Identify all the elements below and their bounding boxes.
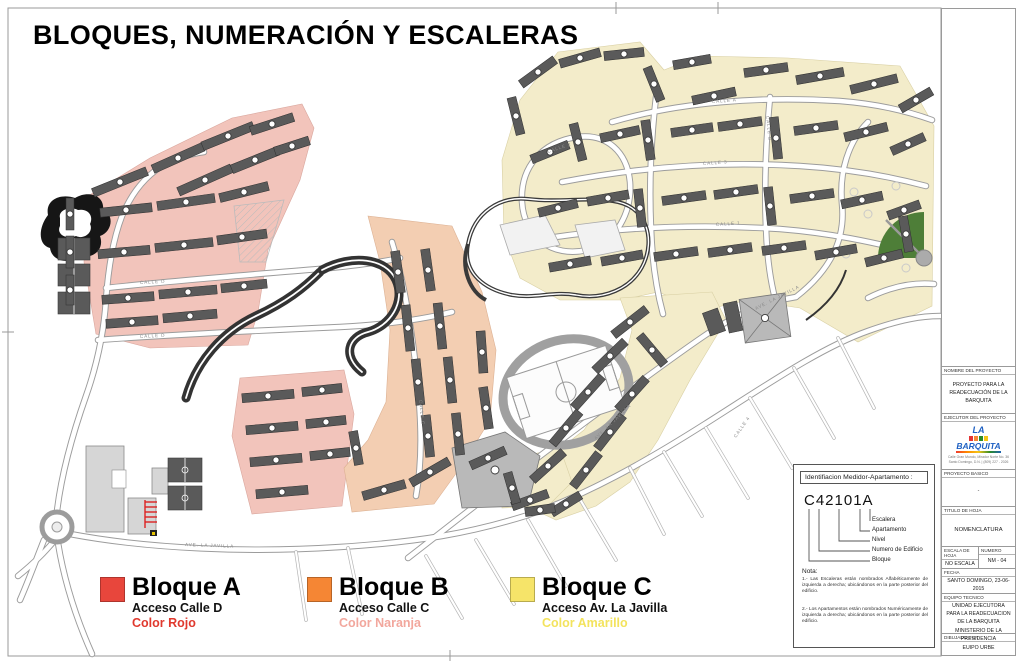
building xyxy=(66,236,74,268)
road xyxy=(630,468,664,534)
building xyxy=(66,275,74,305)
building-number-badge xyxy=(736,120,743,127)
drawn-by: EUIPO URBE xyxy=(942,642,1015,655)
building-number-badge xyxy=(621,51,628,58)
page-title: BLOQUES, NUMERACIÓN Y ESCALERAS xyxy=(33,20,578,51)
building-number-badge xyxy=(269,425,276,432)
legend-swatch-orange xyxy=(307,577,332,602)
section-header: NUMERO xyxy=(979,547,1015,555)
building-number-badge xyxy=(67,211,73,217)
section-header: DIBUJADO POR xyxy=(942,634,1015,642)
section-header: ESCALA DE HOJA xyxy=(942,547,978,560)
legend-acceso: Acceso Calle D xyxy=(132,601,241,615)
street-label: CALLE 4 xyxy=(733,415,751,438)
building-number-badge xyxy=(773,135,780,142)
building-number-badge xyxy=(437,323,444,330)
building-number-badge xyxy=(265,393,272,400)
section-header: EJECUTOR DEL PROYECTO xyxy=(942,414,1015,422)
note-1: 1.- Las Escaleras están nombrados Alfabé… xyxy=(802,577,928,596)
road xyxy=(794,368,834,438)
section-header: FECHA xyxy=(942,569,1015,577)
equipo-line-1: UNIDAD EJECUTORA PARA LA READECUACION DE… xyxy=(945,603,1012,626)
identification-box: Identifiacion Medidor-Apartamento : C421… xyxy=(793,464,935,648)
building-number-badge xyxy=(273,457,280,464)
building-number-badge xyxy=(123,207,130,214)
code-part-apartamento: Apartamento xyxy=(872,527,906,533)
building-number-badge xyxy=(780,244,787,251)
code-part-escalera: Escalera xyxy=(872,517,895,523)
building xyxy=(66,198,74,230)
building-number-badge xyxy=(482,404,489,411)
section-header: PROYECTO BASICO xyxy=(942,470,1015,478)
section-nombre-proyecto: NOMBRE DEL PROYECTO PROYECTO PARA LA REA… xyxy=(942,367,1015,414)
section-dibujado-por: DIBUJADO POR EUIPO URBE xyxy=(942,634,1015,655)
building-number-badge xyxy=(812,124,819,131)
building-number-badge xyxy=(455,431,462,438)
legend-acceso: Acceso Calle C xyxy=(339,601,449,615)
building-number-badge xyxy=(536,506,543,513)
legend-item-bloque-a: Bloque A Acceso Calle D Color Rojo xyxy=(100,574,241,630)
drawing-sheet: CALLE D CALLE C AVE. LA JAVILLA AVE. LA … xyxy=(0,0,1024,663)
title-block: NOMBRE DEL PROYECTO PROYECTO PARA LA REA… xyxy=(941,8,1016,656)
road xyxy=(476,540,514,604)
code-part-nivel: Nivel xyxy=(872,537,885,543)
building-number-badge xyxy=(726,246,733,253)
road xyxy=(706,428,748,498)
building-number-badge xyxy=(319,387,326,394)
roundabout xyxy=(42,512,72,542)
building-number-badge xyxy=(185,289,192,296)
section-titulo-hoja: TITULO DE HOJA NOMENCLATURA xyxy=(942,507,1015,547)
la-barquita-logo: LA BARQUITA Calle Gran Mundo, Mirador No… xyxy=(948,426,1009,464)
building-number-badge xyxy=(425,433,432,440)
building-number-badge xyxy=(767,203,774,210)
building-number-badge xyxy=(67,287,73,293)
legend-label: Bloque A xyxy=(132,574,241,600)
sheet-title: NOMENCLATURA xyxy=(942,515,1015,546)
road xyxy=(58,543,92,654)
sheet-number: NM - 04 xyxy=(979,555,1015,568)
date-value: SANTO DOMINGO, 23-06-2015 xyxy=(942,577,1015,595)
section-ejecutor: EJECUTOR DEL PROYECTO LA BARQUITA Calle … xyxy=(942,414,1015,470)
note-title: Nota: xyxy=(802,568,818,575)
building-number-badge xyxy=(279,489,286,496)
building-number-badge xyxy=(241,283,248,290)
legend-label: Bloque B xyxy=(339,574,449,600)
building-number-badge xyxy=(424,266,431,273)
civic-buildings xyxy=(86,446,202,536)
building-number-badge xyxy=(187,313,194,320)
legend-color-label: Color Amarillo xyxy=(542,616,667,630)
note-2: 2.- Los Apartamentos están nombrados Num… xyxy=(802,607,928,626)
building-number-badge xyxy=(680,194,687,201)
legend-item-bloque-c: Bloque C Acceso Av. La Javilla Color Ama… xyxy=(510,574,667,630)
building-number-badge xyxy=(644,136,651,143)
building-number-badge xyxy=(181,242,188,249)
building-number-badge xyxy=(129,319,136,326)
road xyxy=(664,452,702,516)
building-number-badge xyxy=(405,325,412,332)
section-equipo-tecnico: EQUIPO TECNICO UNIDAD EJECUTORA PARA LA … xyxy=(942,594,1015,634)
building-number-badge xyxy=(637,205,644,212)
section-proyecto-basico: PROYECTO BASICO - xyxy=(942,470,1015,507)
legend-swatch-yellow xyxy=(510,577,535,602)
sport-courts xyxy=(168,458,202,510)
legend-color-label: Color Rojo xyxy=(132,616,241,630)
section-fecha: FECHA SANTO DOMINGO, 23-06-2015 xyxy=(942,569,1015,594)
logo-text-barquita: BARQUITA xyxy=(956,442,1000,453)
title-block-spacer xyxy=(942,9,1015,367)
section-escala-numero: ESCALA DE HOJA NO ESCALA NUMERO NM - 04 xyxy=(942,547,1015,569)
building-number-badge xyxy=(323,419,330,426)
legend-color-label: Color Naranja xyxy=(339,616,449,630)
code-part-bloque: Bloque xyxy=(872,557,891,563)
legend-swatch-red xyxy=(100,577,125,602)
building-number-badge xyxy=(238,233,245,240)
building-number-badge xyxy=(182,198,189,205)
building-number-badge xyxy=(121,249,128,256)
legend-label: Bloque C xyxy=(542,574,667,600)
building-number-badge xyxy=(327,451,334,458)
building-number-badge xyxy=(447,377,454,384)
building-number-badge xyxy=(762,66,769,73)
building-number-badge xyxy=(732,188,739,195)
section-header: EQUIPO TECNICO xyxy=(942,594,1015,602)
project-name: PROYECTO PARA LA READECUACIÓN DE LA BARQ… xyxy=(942,375,1015,413)
building-number-badge xyxy=(688,126,695,133)
proyecto-basico-content: - xyxy=(942,478,1015,506)
building-number-badge xyxy=(672,250,679,257)
road xyxy=(838,338,874,408)
section-header: TITULO DE HOJA xyxy=(942,507,1015,515)
legend-item-bloque-b: Bloque B Acceso Calle C Color Naranja xyxy=(307,574,449,630)
building-number-badge xyxy=(808,192,815,199)
logo-address-2: Santo Domingo, D.N. | (809) 227 - 2026 xyxy=(949,460,1009,465)
legend-acceso: Acceso Av. La Javilla xyxy=(542,601,667,615)
logo-text-la: LA xyxy=(973,426,985,435)
road xyxy=(296,552,306,620)
building-number-badge xyxy=(479,349,486,356)
code-part-numero-edificio: Numero de Edificio xyxy=(872,547,923,553)
building-number-badge xyxy=(415,379,422,386)
building-number-badge xyxy=(125,295,132,302)
building-number-badge xyxy=(67,249,73,255)
road xyxy=(750,398,792,468)
section-header: NOMBRE DEL PROYECTO xyxy=(942,367,1015,375)
building-number-badge xyxy=(394,268,401,275)
